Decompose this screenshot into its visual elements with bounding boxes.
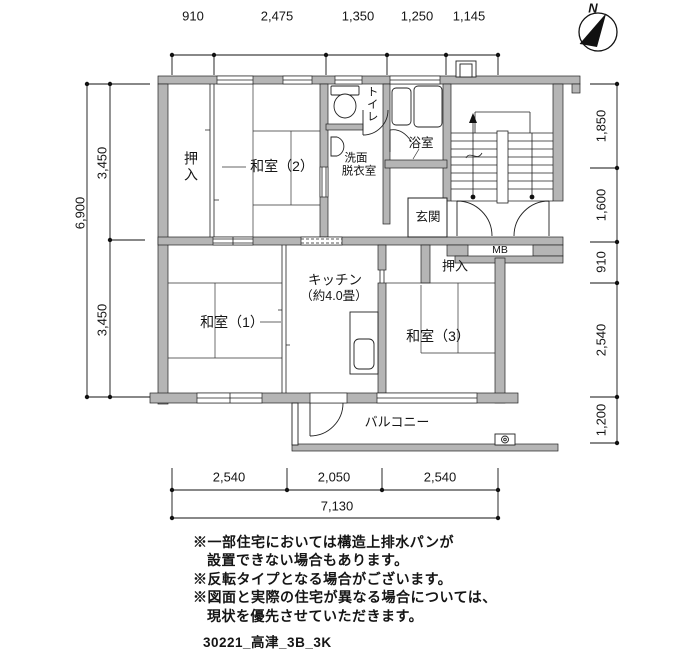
room-label-genkan: 玄関 [415, 211, 440, 224]
dim-top-910: 910 [182, 10, 204, 23]
note-line-3: ※反転タイプとなる場合がございます。 [193, 569, 452, 589]
dim-right-1850: 1,850 [595, 110, 608, 143]
dim-right-1200: 1,200 [595, 404, 608, 437]
room-label-bath: 浴室 [408, 137, 433, 150]
room-label-oshiire-upper: 押入 [184, 151, 198, 183]
dim-left-6900: 6,900 [74, 197, 87, 230]
room-label-washroom-1: 洗面 [345, 153, 368, 165]
floorplan-page: 910 2,475 1,350 1,250 1,145 3,450 3,450 … [0, 0, 700, 650]
room-label-washitsu3: 和室（3） [406, 329, 470, 343]
toilet-bowl [334, 94, 356, 118]
room-label-balcony: バルコニー [365, 416, 430, 429]
dim-top-1350: 1,350 [342, 10, 375, 23]
room-label-meter-box: MB [492, 245, 508, 256]
note-line-5: 現状を優先させていただきます。 [207, 606, 423, 626]
note-line-4: ※図面と実際の住宅が異なる場合については、 [193, 587, 497, 607]
room-label-oshiire-lower: 押入 [442, 260, 468, 273]
balcony-left-rail [292, 403, 298, 445]
bathtub-right [414, 86, 442, 127]
room-label-washitsu1: 和室（1） [200, 315, 264, 329]
dim-top-1145: 1,145 [453, 10, 486, 23]
dim-bottom-2540a: 2,540 [213, 471, 246, 484]
room-label-toilet: トイレ [365, 85, 377, 123]
note-line-1: ※一部住宅においては構造上排水パンが [193, 532, 454, 552]
room-label-kitchen-size: （約4.0畳） [300, 290, 367, 303]
dim-bottom-7130: 7,130 [321, 500, 354, 513]
vent-shaft-inner [460, 64, 472, 77]
dim-right-2540: 2,540 [595, 324, 608, 357]
dim-right-1600: 1,600 [595, 189, 608, 222]
room-label-kitchen: キッチン [308, 273, 362, 287]
staircase [451, 112, 553, 203]
dim-top-2475: 2,475 [261, 10, 294, 23]
dim-top-1250: 1,250 [401, 10, 434, 23]
bathtub-left [392, 88, 411, 125]
drawing-code: 30221_高津_3B_3K [203, 631, 332, 650]
compass-icon [579, 13, 617, 51]
kitchen-sink-bowl [354, 339, 374, 369]
note-line-2: 設置できない場合もあります。 [207, 550, 409, 570]
compass-north-label: N [588, 2, 597, 15]
dim-left-3450-upper: 3,450 [96, 147, 109, 180]
dim-bottom-2540b: 2,540 [424, 471, 457, 484]
room-label-washroom-2: 脱衣室 [342, 166, 377, 178]
dim-right-910: 910 [595, 251, 608, 273]
dim-bottom-2050: 2,050 [318, 471, 351, 484]
room-label-washitsu2: 和室（2） [250, 159, 314, 173]
washbasin [331, 137, 344, 156]
dim-left-3450-lower: 3,450 [96, 304, 109, 337]
